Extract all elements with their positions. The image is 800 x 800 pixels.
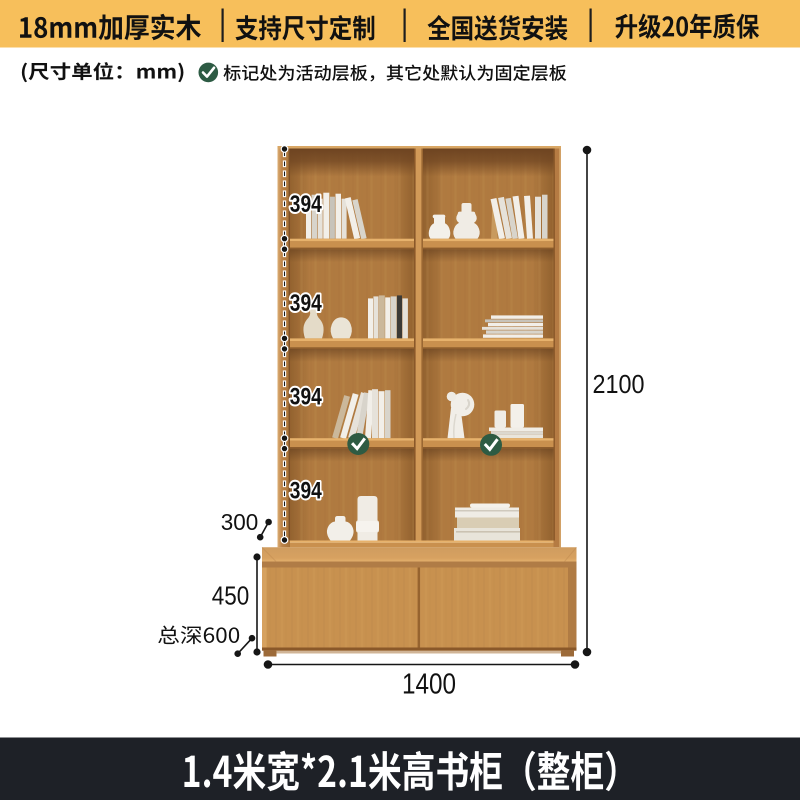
svg-text:1400: 1400 <box>402 669 456 701</box>
svg-text:394: 394 <box>290 478 323 505</box>
svg-text:450: 450 <box>212 581 250 611</box>
svg-text:300: 300 <box>221 509 259 535</box>
svg-text:394: 394 <box>290 290 323 317</box>
svg-text:2100: 2100 <box>593 369 645 399</box>
svg-text:394: 394 <box>290 191 323 218</box>
svg-text:394: 394 <box>290 384 323 411</box>
